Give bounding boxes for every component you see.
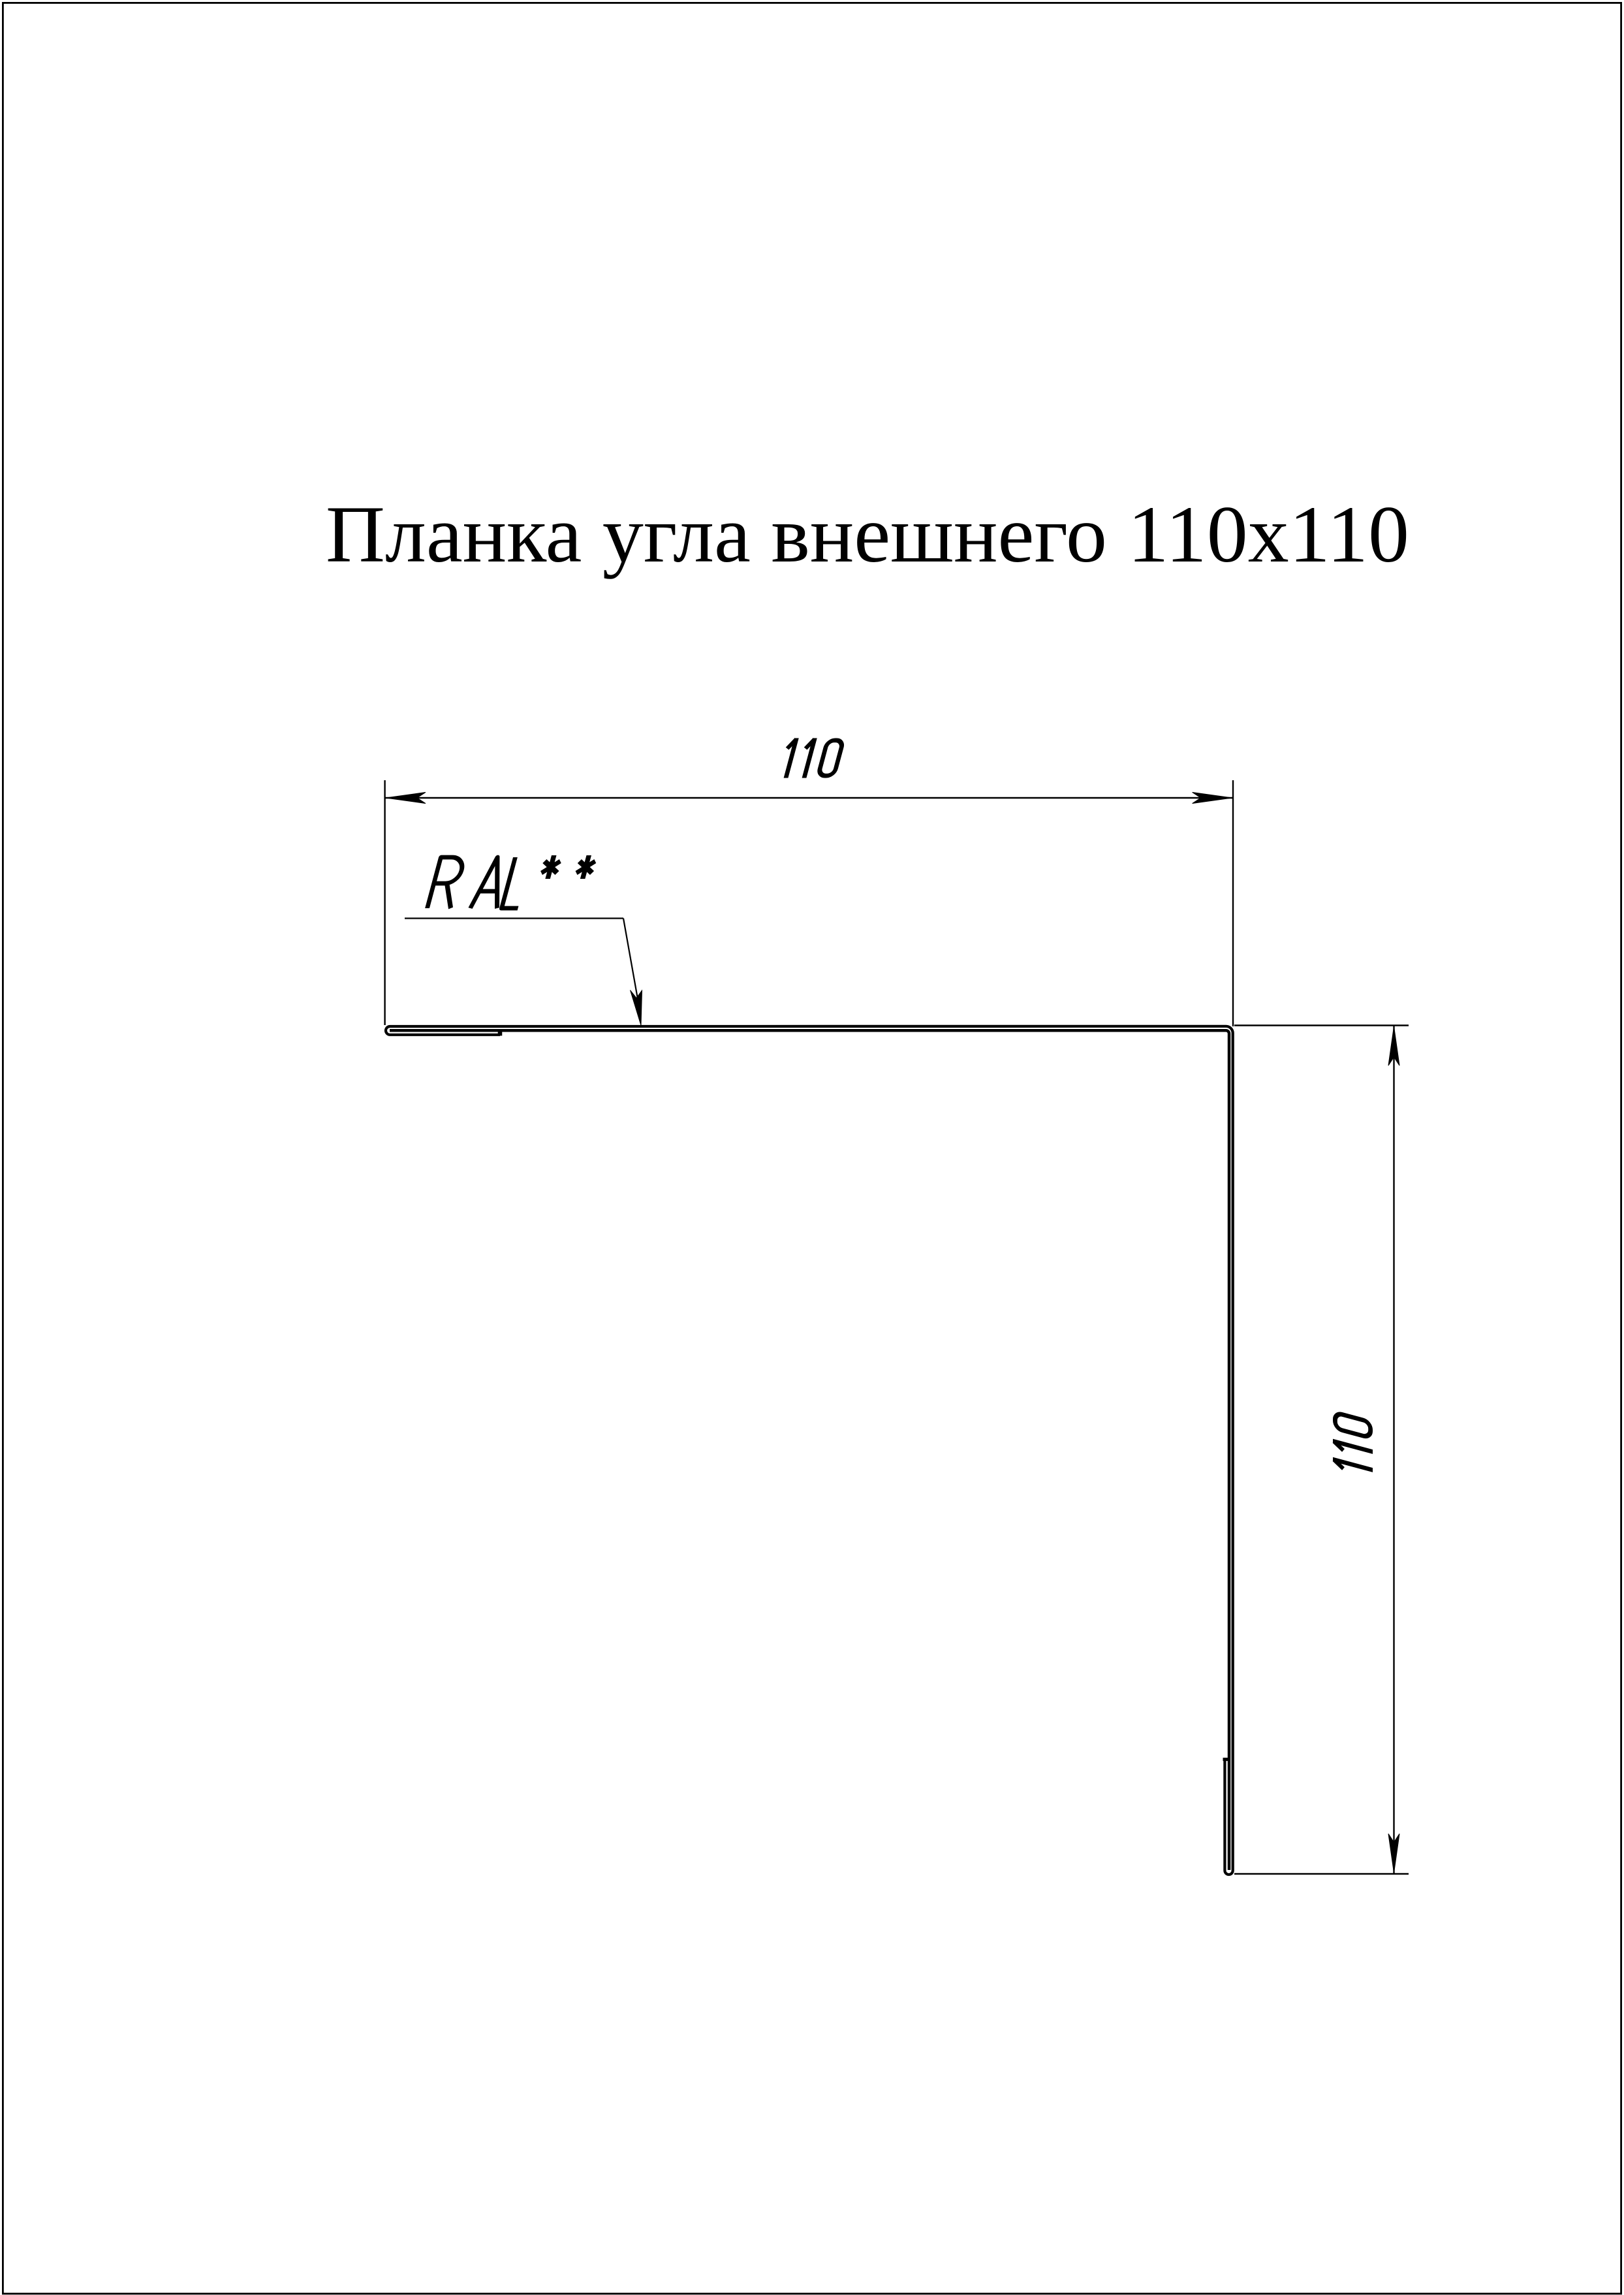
svg-text:Планка угла внешнего 110x110: Планка угла внешнего 110x110 bbox=[326, 490, 1409, 579]
